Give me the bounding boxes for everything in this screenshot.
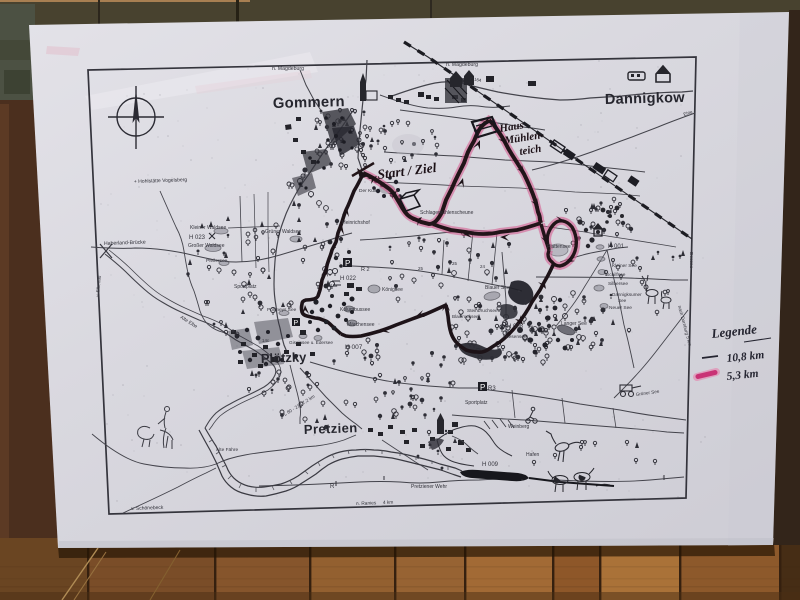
svg-text:H 007: H 007 (345, 344, 363, 351)
svg-text:Der Kulk: Der Kulk (359, 188, 378, 194)
svg-text:Königsee: Königsee (382, 287, 403, 293)
svg-text:Pollmeys See: Pollmeys See (267, 307, 297, 313)
svg-text:25: 25 (418, 266, 423, 271)
svg-text:Großer Waldsee: Großer Waldsee (188, 243, 225, 249)
svg-text:Plattensee: Plattensee (547, 244, 571, 250)
svg-text:Alte Fähre: Alte Fähre (216, 447, 238, 453)
svg-text:Gommern: Gommern (273, 94, 345, 112)
svg-text:P: P (294, 320, 299, 327)
svg-text:Sportplatz: Sportplatz (234, 284, 257, 290)
svg-text:H 023: H 023 (189, 235, 206, 241)
svg-text:Giselasee u. Edersee: Giselasee u. Edersee (289, 340, 333, 345)
svg-text:See: See (618, 298, 627, 303)
svg-text:v. Schönebeck: v. Schönebeck (131, 505, 164, 512)
svg-text:Dessau: Dessau (688, 252, 694, 269)
svg-text:Pretzien: Pretzien (304, 420, 358, 437)
svg-text:n. Magdeburg: n. Magdeburg (272, 66, 304, 72)
svg-text:Blauer See: Blauer See (485, 285, 510, 291)
svg-text:Weinberg: Weinberg (508, 424, 530, 430)
svg-text:Schlagemühlenscheune: Schlagemühlenscheune (420, 210, 474, 216)
svg-text:Hafen: Hafen (526, 452, 540, 458)
svg-text:24: 24 (480, 264, 485, 269)
svg-text:H 022: H 022 (340, 276, 357, 282)
svg-text:14c: 14c (262, 338, 270, 343)
svg-text:Neuer See: Neuer See (609, 305, 632, 311)
svg-text:Dannigksumer: Dannigksumer (612, 292, 642, 297)
svg-text:H 009: H 009 (482, 462, 499, 468)
svg-text:Dannigkow: Dannigkow (605, 90, 686, 108)
svg-text:Plötzky: Plötzky (261, 349, 308, 366)
svg-text:Kleiner Waldsee: Kleiner Waldsee (190, 225, 226, 231)
svg-text:Kolumbussee: Kolumbussee (340, 307, 371, 313)
svg-text:R 2: R 2 (361, 267, 370, 273)
svg-text:R3: R3 (488, 386, 496, 392)
svg-text:25: 25 (452, 261, 457, 266)
svg-text:Pfeilersee: Pfeilersee (206, 258, 228, 264)
svg-text:Pretziener Wehr: Pretziener Wehr (411, 484, 447, 490)
svg-text:Langer See: Langer See (561, 321, 587, 327)
svg-text:n. Ranies: n. Ranies (356, 500, 377, 507)
svg-text:n. Magdeburg: n. Magdeburg (446, 62, 478, 68)
svg-text:P: P (345, 259, 350, 268)
svg-text:Heinrichshof: Heinrichshof (342, 220, 370, 226)
svg-text:Friesensee: Friesensee (503, 334, 527, 340)
svg-text:H 001: H 001 (608, 244, 625, 250)
svg-text:Märchensee: Märchensee (347, 322, 375, 328)
svg-text:Schilfsee: Schilfsee (606, 272, 626, 278)
svg-text:R: R (330, 484, 335, 490)
svg-text:Kleiner See: Kleiner See (612, 263, 637, 269)
svg-text:4 km: 4 km (383, 500, 394, 506)
svg-text:14a: 14a (330, 283, 338, 288)
svg-text:Grüner Waldsee: Grüner Waldsee (265, 229, 301, 235)
svg-text:Silbersee: Silbersee (608, 281, 628, 287)
svg-text:Blaibruchsee: Blaibruchsee (452, 314, 479, 319)
svg-text:Sportplatz: Sportplatz (465, 400, 488, 406)
